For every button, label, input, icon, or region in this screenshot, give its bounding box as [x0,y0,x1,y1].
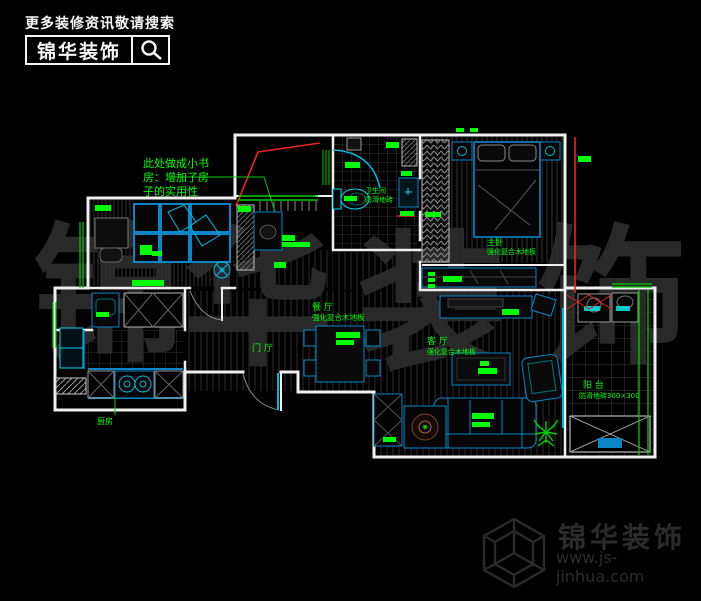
chair [260,225,276,239]
cube-logo-icon [478,516,550,591]
chair [100,248,122,262]
brand-logo: 锦华装饰 www.js-jinhua.com [478,516,693,591]
dining-floor: 强化复合木地板 [312,312,365,322]
radiator-hatch [260,201,316,211]
bath-name: 卫生间 [365,186,386,195]
double-bed [474,142,540,237]
dining-name: 餐 厅 [312,301,333,313]
storage-box [570,416,650,452]
sofa [434,398,536,448]
window-line [238,196,318,200]
stove [115,371,154,398]
balcony-name: 阳 台 [583,379,604,391]
master-floor: 强化复合木地板 [487,247,536,256]
note-line: 子的实用性 [143,184,198,198]
tv-cabinet [440,296,532,318]
living-name: 客 厅 [427,335,448,347]
note-line: 房：增加了房 [143,170,209,184]
footer-url: www.js-jinhua.com [556,548,693,586]
washbasin [347,138,361,150]
laundry-sink [612,293,638,322]
desk [95,218,128,248]
shower-head [386,142,399,148]
nightstand [540,142,560,160]
foyer-name: 门 厅 [252,342,273,354]
kitchen-name: 厨房 [97,416,113,426]
living-floor: 强化复合木地板 [427,347,476,356]
annotation-block [578,156,591,162]
shelf-cabinet [374,394,402,446]
duct [402,139,417,166]
flue [56,378,86,394]
floor-fan [404,406,446,448]
floorplan-screenshot: 更多装修资讯敬请搜索 锦华装饰 [0,0,701,601]
note-line: 此处做成小书 [143,156,209,170]
coffee-table [452,353,510,385]
nightstand [452,142,472,160]
floor-plan-svg: 锦 华 装 饰 此处做成小书 房：增加了房 [0,0,701,601]
wardrobe [422,140,449,262]
storage [124,293,183,327]
tv [448,299,503,307]
bath-floor: 防滑地砖 [365,195,393,204]
master-name: 主卧 [487,237,503,247]
armchair [521,354,563,403]
balcony-floor: 防滑地砖300×300 [579,391,640,400]
